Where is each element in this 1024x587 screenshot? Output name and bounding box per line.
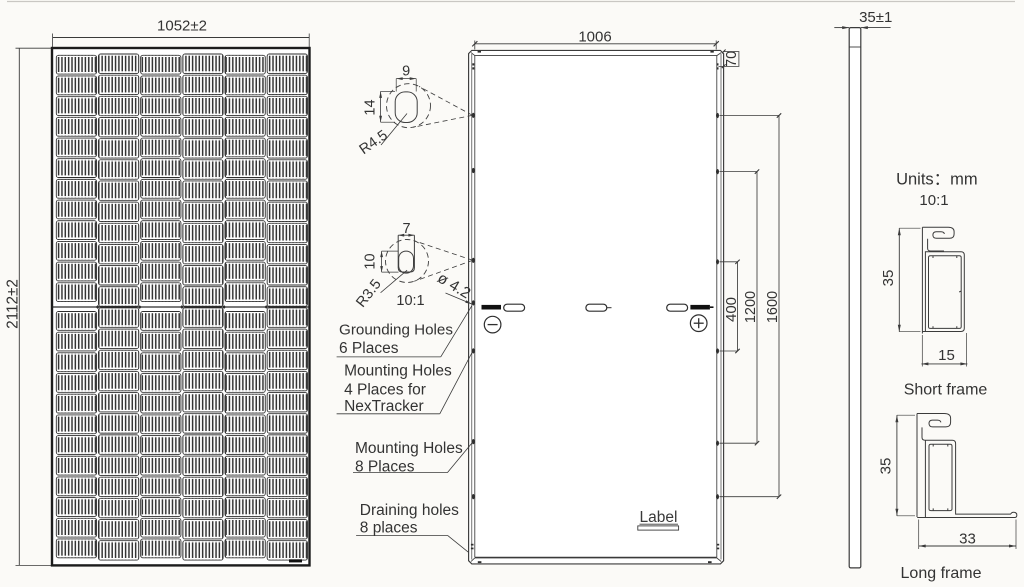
svg-text:10:1: 10:1 bbox=[919, 192, 948, 209]
svg-text:Long frame: Long frame bbox=[901, 565, 982, 582]
svg-text:Mounting Holes: Mounting Holes bbox=[355, 440, 463, 457]
svg-text:NexTracker: NexTracker bbox=[344, 398, 424, 415]
svg-text:9: 9 bbox=[402, 64, 410, 80]
svg-text:33: 33 bbox=[959, 531, 976, 548]
svg-text:35: 35 bbox=[880, 270, 897, 287]
svg-text:Short frame: Short frame bbox=[904, 382, 988, 399]
svg-text:10:1: 10:1 bbox=[396, 293, 424, 309]
svg-text:70: 70 bbox=[724, 51, 740, 67]
svg-text:1052±2: 1052±2 bbox=[157, 18, 207, 35]
svg-text:6 Places: 6 Places bbox=[339, 340, 399, 357]
svg-text:35±1: 35±1 bbox=[859, 9, 892, 26]
svg-text:Units：mm: Units：mm bbox=[896, 170, 978, 188]
svg-text:1006: 1006 bbox=[578, 28, 611, 45]
svg-text:4 Places for: 4 Places for bbox=[344, 381, 426, 398]
svg-text:14: 14 bbox=[362, 99, 378, 115]
svg-text:400: 400 bbox=[723, 297, 740, 322]
svg-text:Mounting Holes: Mounting Holes bbox=[344, 363, 452, 380]
svg-text:Label: Label bbox=[640, 509, 678, 526]
svg-text:1600: 1600 bbox=[765, 291, 781, 323]
svg-text:Draining holes: Draining holes bbox=[360, 502, 459, 519]
svg-text:35: 35 bbox=[878, 458, 895, 475]
svg-text:1200: 1200 bbox=[743, 291, 759, 323]
svg-text:8 places: 8 places bbox=[360, 519, 418, 536]
svg-text:10: 10 bbox=[363, 253, 379, 269]
svg-text:Grounding Holes: Grounding Holes bbox=[339, 321, 453, 338]
svg-text:15: 15 bbox=[938, 347, 955, 364]
